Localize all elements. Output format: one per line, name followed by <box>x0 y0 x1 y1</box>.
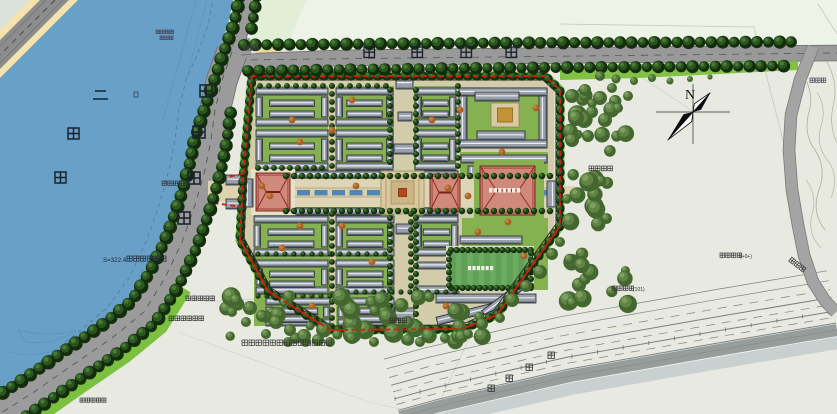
svg-text:(101): (101) <box>633 287 645 293</box>
svg-text:S=322.4: S=322.4 <box>103 257 127 264</box>
svg-text:N: N <box>685 88 695 103</box>
svg-text:(+0+): (+0+) <box>740 254 752 260</box>
